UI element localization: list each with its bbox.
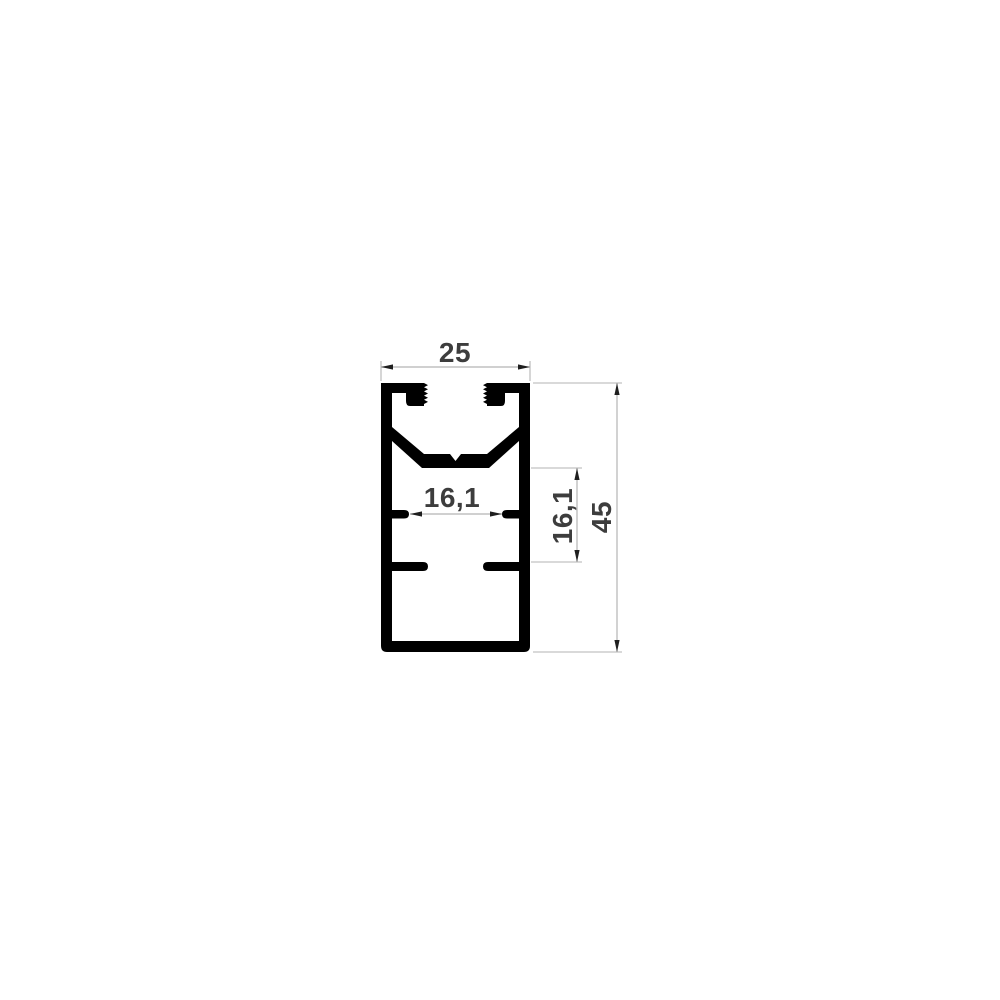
dimension-inner-width: 16,1 xyxy=(410,482,502,517)
profile-drawing: 25 45 16,1 16,1 xyxy=(0,0,1000,1000)
arrow-right-icon xyxy=(518,364,530,369)
profile-lower-fin-right xyxy=(483,562,523,571)
arrow-down-icon xyxy=(574,550,579,562)
arrow-left-icon xyxy=(381,364,393,369)
arrow-left-icon xyxy=(410,511,422,516)
arrow-up-icon xyxy=(614,383,619,395)
profile-channel-floor xyxy=(392,427,519,468)
arrow-down-icon xyxy=(614,640,619,652)
profile-lower-fin-left xyxy=(388,562,428,571)
profile-mid-fin-right xyxy=(502,510,523,519)
dim-label-overall-height: 45 xyxy=(586,501,617,533)
profile-cross-section xyxy=(381,383,530,652)
dim-label-overall-width: 25 xyxy=(439,337,471,368)
dimension-inner-height: 16,1 xyxy=(531,468,582,562)
drawing-canvas: 25 45 16,1 16,1 xyxy=(0,0,1000,1000)
arrow-up-icon xyxy=(574,468,579,480)
dim-label-inner-height: 16,1 xyxy=(547,488,578,545)
dimension-overall-width: 25 xyxy=(381,337,530,381)
arrow-right-icon xyxy=(490,511,502,516)
dim-label-inner-width: 16,1 xyxy=(424,482,481,513)
profile-mid-fin-left xyxy=(388,510,409,519)
